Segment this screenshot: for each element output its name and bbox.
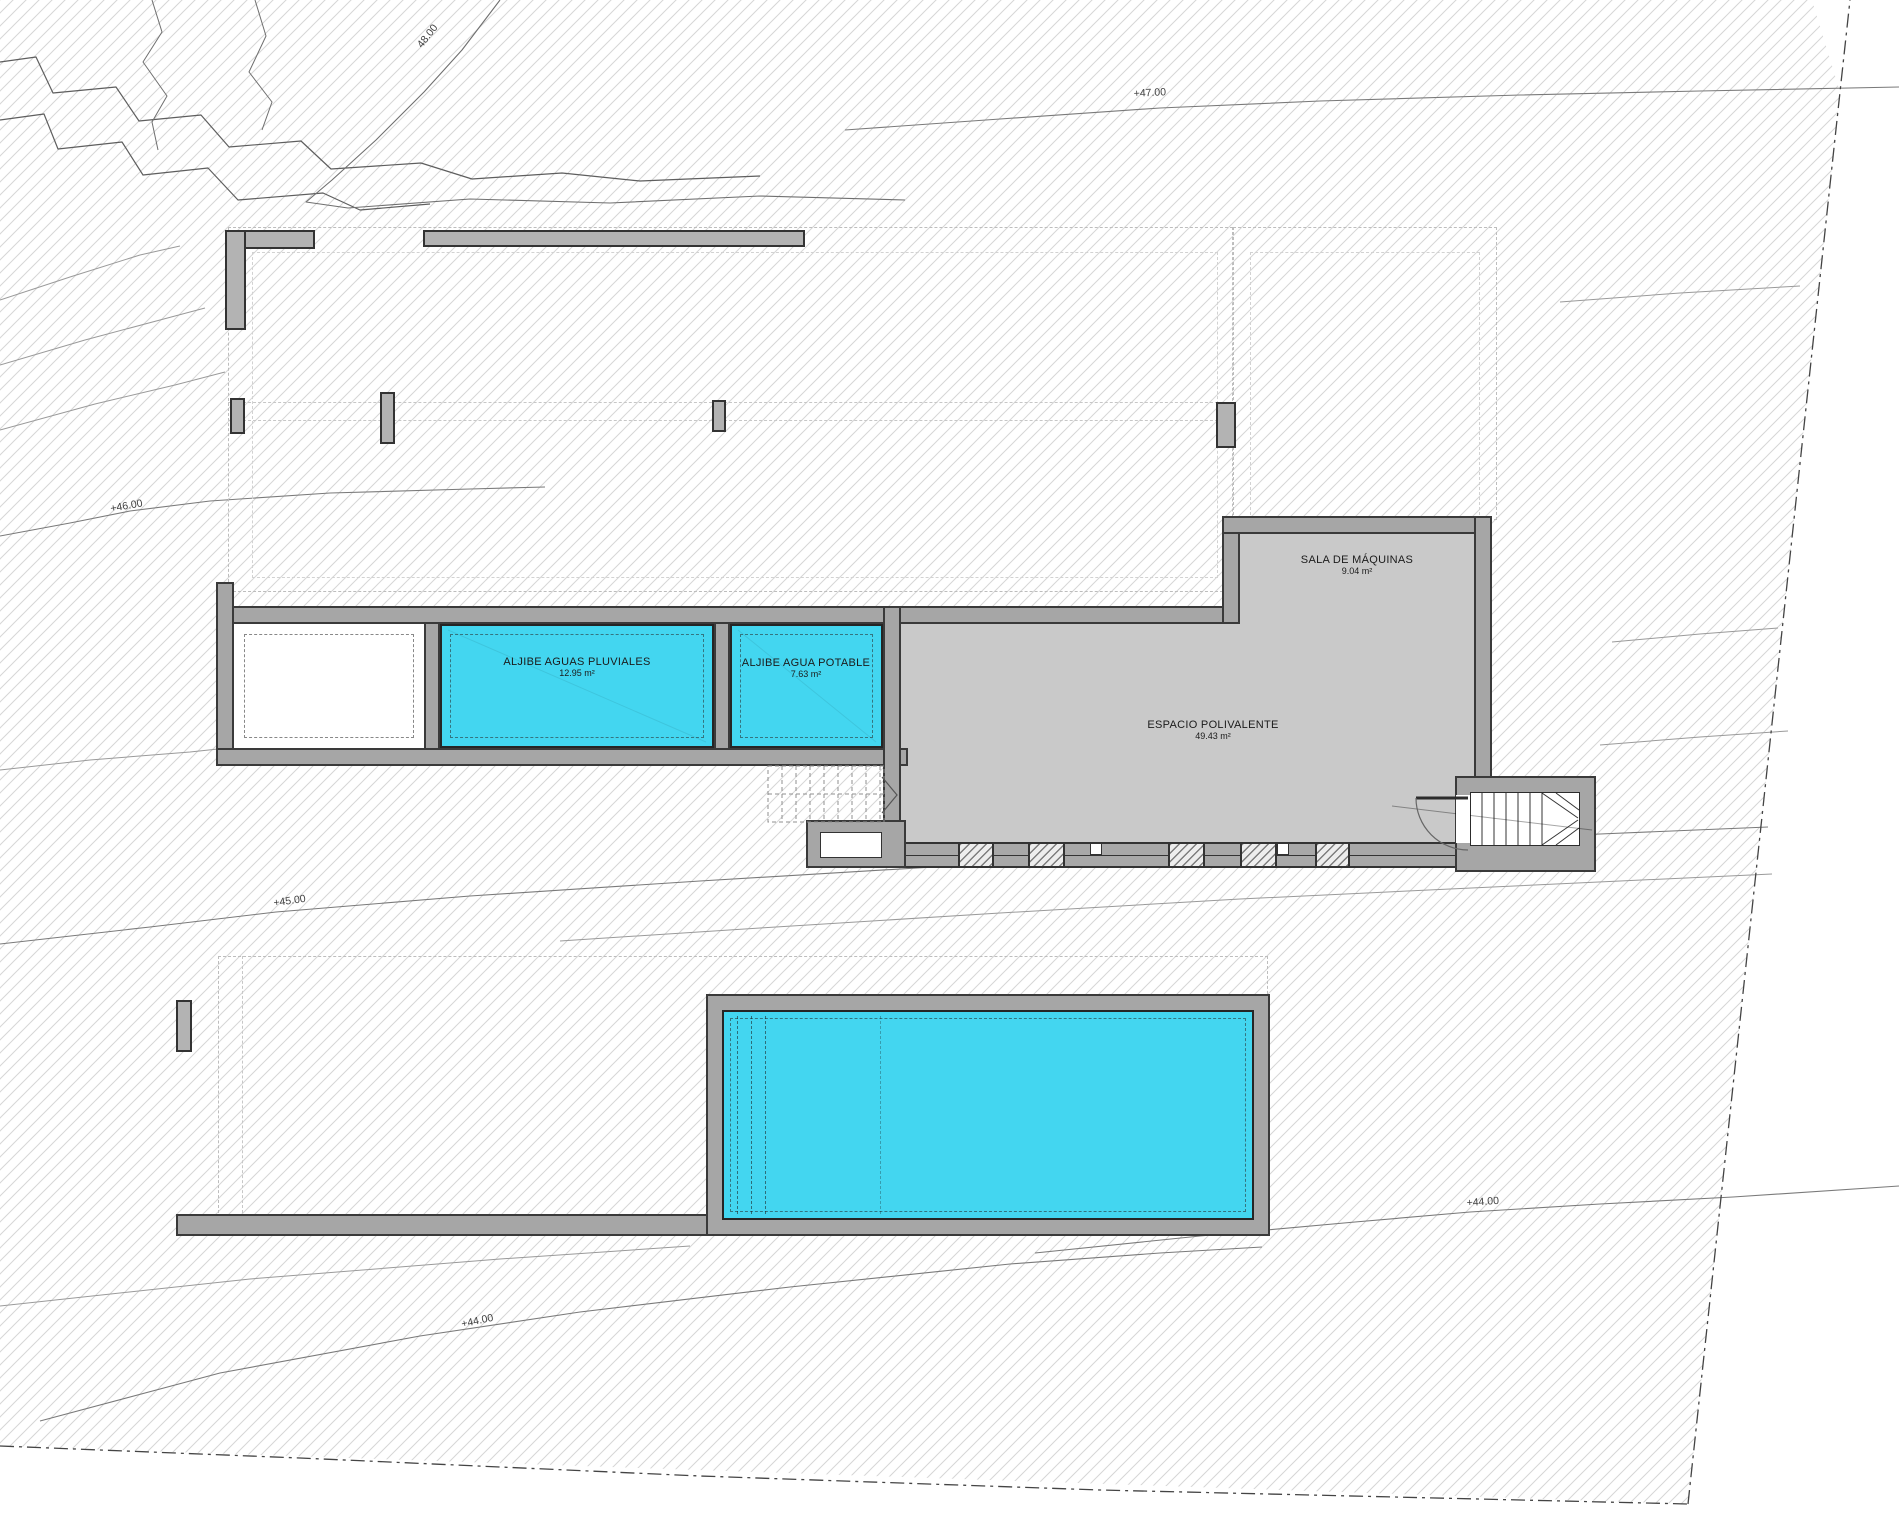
upper-floor-wall-line xyxy=(228,420,1233,421)
wall-terrace-bottom xyxy=(176,1214,712,1236)
room-label-polivalente: ESPACIO POLIVALENTE 49.43 m² xyxy=(1147,719,1278,741)
upper-floor-outline-inner xyxy=(252,252,1218,578)
room-label-pluviales: ALJIBE AGUAS PLUVIALES 12.95 m² xyxy=(503,656,650,678)
aljibe-potable-inner-outline xyxy=(740,634,873,738)
room-area-sala: 9.04 m² xyxy=(1301,566,1413,576)
room-area-potable: 7.63 m² xyxy=(742,669,870,679)
pool-step-line xyxy=(751,1016,752,1214)
pool-inner-outline xyxy=(730,1018,1246,1212)
pier-hatched xyxy=(1028,842,1065,868)
wall-divider-2 xyxy=(714,622,730,750)
pier-hatched xyxy=(1168,842,1205,868)
contour-label-44-right: +44.00 xyxy=(1466,1195,1499,1209)
room-area-polivalente: 49.43 m² xyxy=(1147,731,1278,741)
aljibe-pluviales-inner-outline xyxy=(450,634,704,738)
room-name-sala: SALA DE MÁQUINAS xyxy=(1301,554,1413,566)
wall-sala-right xyxy=(1474,516,1492,790)
wall-strip-bottom xyxy=(216,748,908,766)
wall-sala-top xyxy=(1222,516,1492,534)
stairwell xyxy=(1470,792,1580,846)
room-name-polivalente: ESPACIO POLIVALENTE xyxy=(1147,719,1278,731)
wall-stub-corner-vertical xyxy=(225,230,246,330)
room-label-potable: ALJIBE AGUA POTABLE 7.63 m² xyxy=(742,657,870,679)
wall-terrace-stub xyxy=(176,1000,192,1052)
pier-square xyxy=(1090,843,1102,855)
room-name-pluviales: ALJIBE AGUAS PLUVIALES xyxy=(503,656,650,668)
room-sala-de-maquinas xyxy=(1240,532,1474,624)
pier-square xyxy=(1277,843,1289,855)
room-label-sala: SALA DE MÁQUINAS 9.04 m² xyxy=(1301,554,1413,576)
pier-solid xyxy=(1063,842,1170,868)
wall-stub-column xyxy=(712,400,726,432)
pool-step-line xyxy=(737,1016,738,1214)
pool-lane-line xyxy=(880,1016,881,1214)
pier-solid xyxy=(1203,842,1242,868)
upper-floor-wall-line xyxy=(228,402,1233,403)
pier-hatched xyxy=(958,842,994,868)
contour-label-47: +47.00 xyxy=(1133,86,1166,100)
pier-hatched xyxy=(1240,842,1277,868)
upper-floor-outline-right-inner xyxy=(1250,252,1480,520)
terrace-outline-inner xyxy=(242,956,243,1218)
wall-divider-1 xyxy=(424,622,440,750)
protrusion-opening xyxy=(820,832,882,858)
pier-solid xyxy=(1348,842,1460,868)
wall-stub-column xyxy=(1216,402,1236,448)
wall-stub-column xyxy=(380,392,395,444)
room-area-pluviales: 12.95 m² xyxy=(503,668,650,678)
pool-step-line xyxy=(765,1016,766,1214)
compartment-empty-inner-outline xyxy=(244,634,414,738)
wall-stub-top-bar xyxy=(423,230,805,247)
site-plan: 48.00 +47.00 +46.00 +45.00 +44.00 +44.00 xyxy=(0,0,1899,1539)
wall-strip-top xyxy=(232,606,1240,624)
pier-solid xyxy=(992,842,1030,868)
wall-stub-column xyxy=(230,398,245,434)
room-name-potable: ALJIBE AGUA POTABLE xyxy=(742,657,870,669)
pier-hatched xyxy=(1315,842,1350,868)
